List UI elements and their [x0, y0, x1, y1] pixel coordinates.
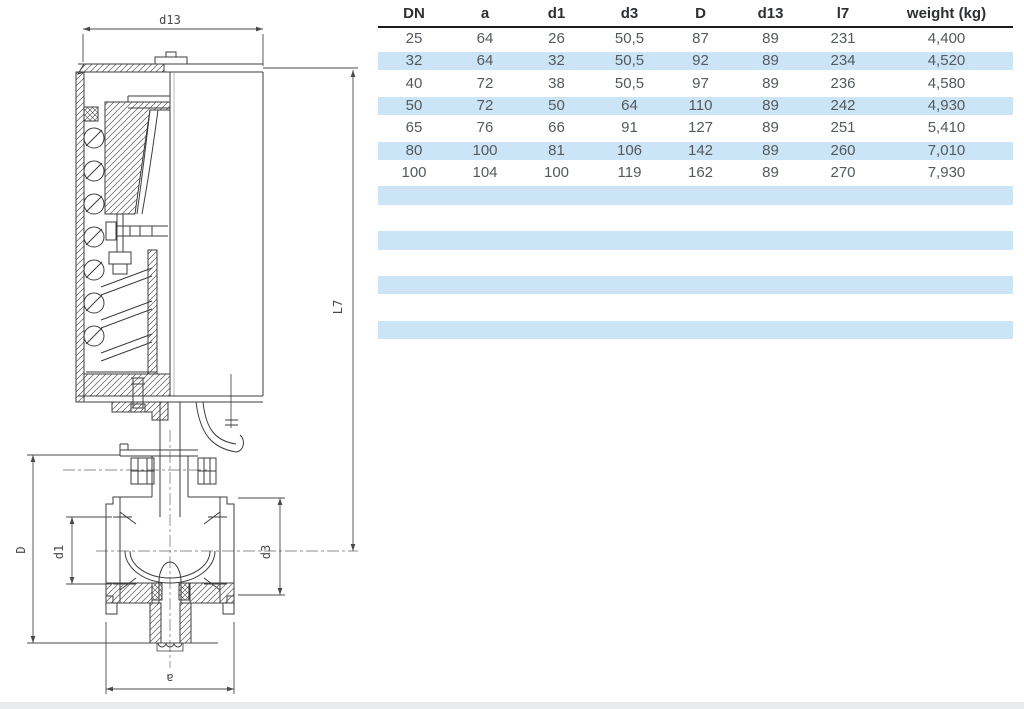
bottom-port-wall: [150, 603, 161, 643]
table-row: 8010081106142892607,010: [378, 140, 1013, 162]
spring-coils: [86, 268, 156, 372]
col-header-D: D: [666, 0, 735, 27]
bonnet-section: [105, 102, 170, 214]
col-header-dn: DN: [378, 0, 450, 27]
col-header-a: a: [450, 0, 520, 27]
stem-nut: [131, 458, 154, 471]
bolt-head: [106, 222, 116, 240]
empty-stripe-row: [378, 319, 1013, 341]
footer-bar: [0, 702, 1024, 709]
dim-label-d3: d3: [259, 545, 273, 559]
empty-stripe-row: [378, 184, 1013, 206]
spring-seat-section: [84, 374, 170, 396]
dim-label-d1: d1: [52, 545, 66, 559]
empty-stripe-row: [378, 229, 1013, 251]
actuator-internals: [84, 96, 170, 412]
adjuster-nut: [109, 252, 131, 264]
col-header-d13: d13: [735, 0, 806, 27]
table-row: 65766691127892515,410: [378, 117, 1013, 139]
datasheet-page: d13 L7 D d1 d3 a DN a d1 d3 D d13 l7 wei…: [0, 0, 1024, 709]
table-row: 32643250,592892344,520: [378, 50, 1013, 72]
bottom-flange-section: [106, 583, 152, 603]
empty-stripe-row: [378, 274, 1013, 296]
table-row: 25642650,587892314,400: [378, 27, 1013, 50]
empty-stripe-row: [378, 207, 1013, 229]
table-row: 40723850,597892364,580: [378, 72, 1013, 94]
col-header-d1: d1: [520, 0, 593, 27]
dim-label-l7: L7: [331, 300, 345, 314]
table-row: 50725064110892424,930: [378, 95, 1013, 117]
stem-tube: [152, 456, 188, 517]
col-header-weight: weight (kg): [880, 0, 1013, 27]
col-header-d3: d3: [593, 0, 666, 27]
seat-seal-left: [152, 583, 162, 600]
clamp-plate: [120, 444, 198, 456]
empty-stripe-row: [378, 296, 1013, 318]
bracket-nut: [198, 458, 216, 471]
top-clip: [155, 57, 187, 64]
dim-label-D: D: [14, 546, 28, 553]
table-header-row: DN a d1 d3 D d13 l7 weight (kg): [378, 0, 1013, 27]
seal-section: [84, 107, 98, 121]
spring-coil-sections: [84, 128, 104, 346]
col-header-l7: l7: [806, 0, 880, 27]
valve-technical-drawing: d13 L7 D d1 d3 a: [0, 0, 378, 709]
housing-left-wall: [76, 72, 84, 402]
seat-seal-right: [179, 583, 189, 600]
dim-label-a: a: [166, 671, 173, 685]
mounting-bracket: [196, 402, 243, 452]
dimension-table: DN a d1 d3 D d13 l7 weight (kg) 25642650…: [378, 0, 1013, 341]
dim-label-d13: d13: [159, 13, 181, 27]
table-row: 100104100119162892707,930: [378, 162, 1013, 184]
empty-stripe-row: [378, 252, 1013, 274]
spring-guide: [148, 250, 157, 374]
